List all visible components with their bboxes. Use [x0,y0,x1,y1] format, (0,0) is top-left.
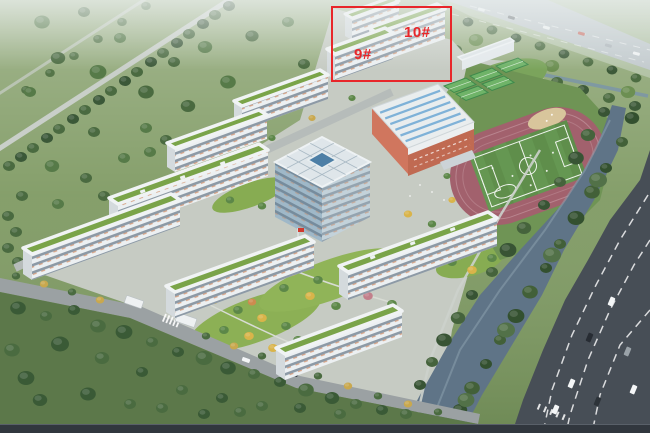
rendering-canvas: 9# 10# [0,0,650,433]
annotation-label-10: 10# [404,24,431,41]
campus-aerial-rendering: 9# 10# [0,0,650,433]
annotation-label-9: 9# [354,46,372,63]
bottom-road-strip [0,424,650,433]
